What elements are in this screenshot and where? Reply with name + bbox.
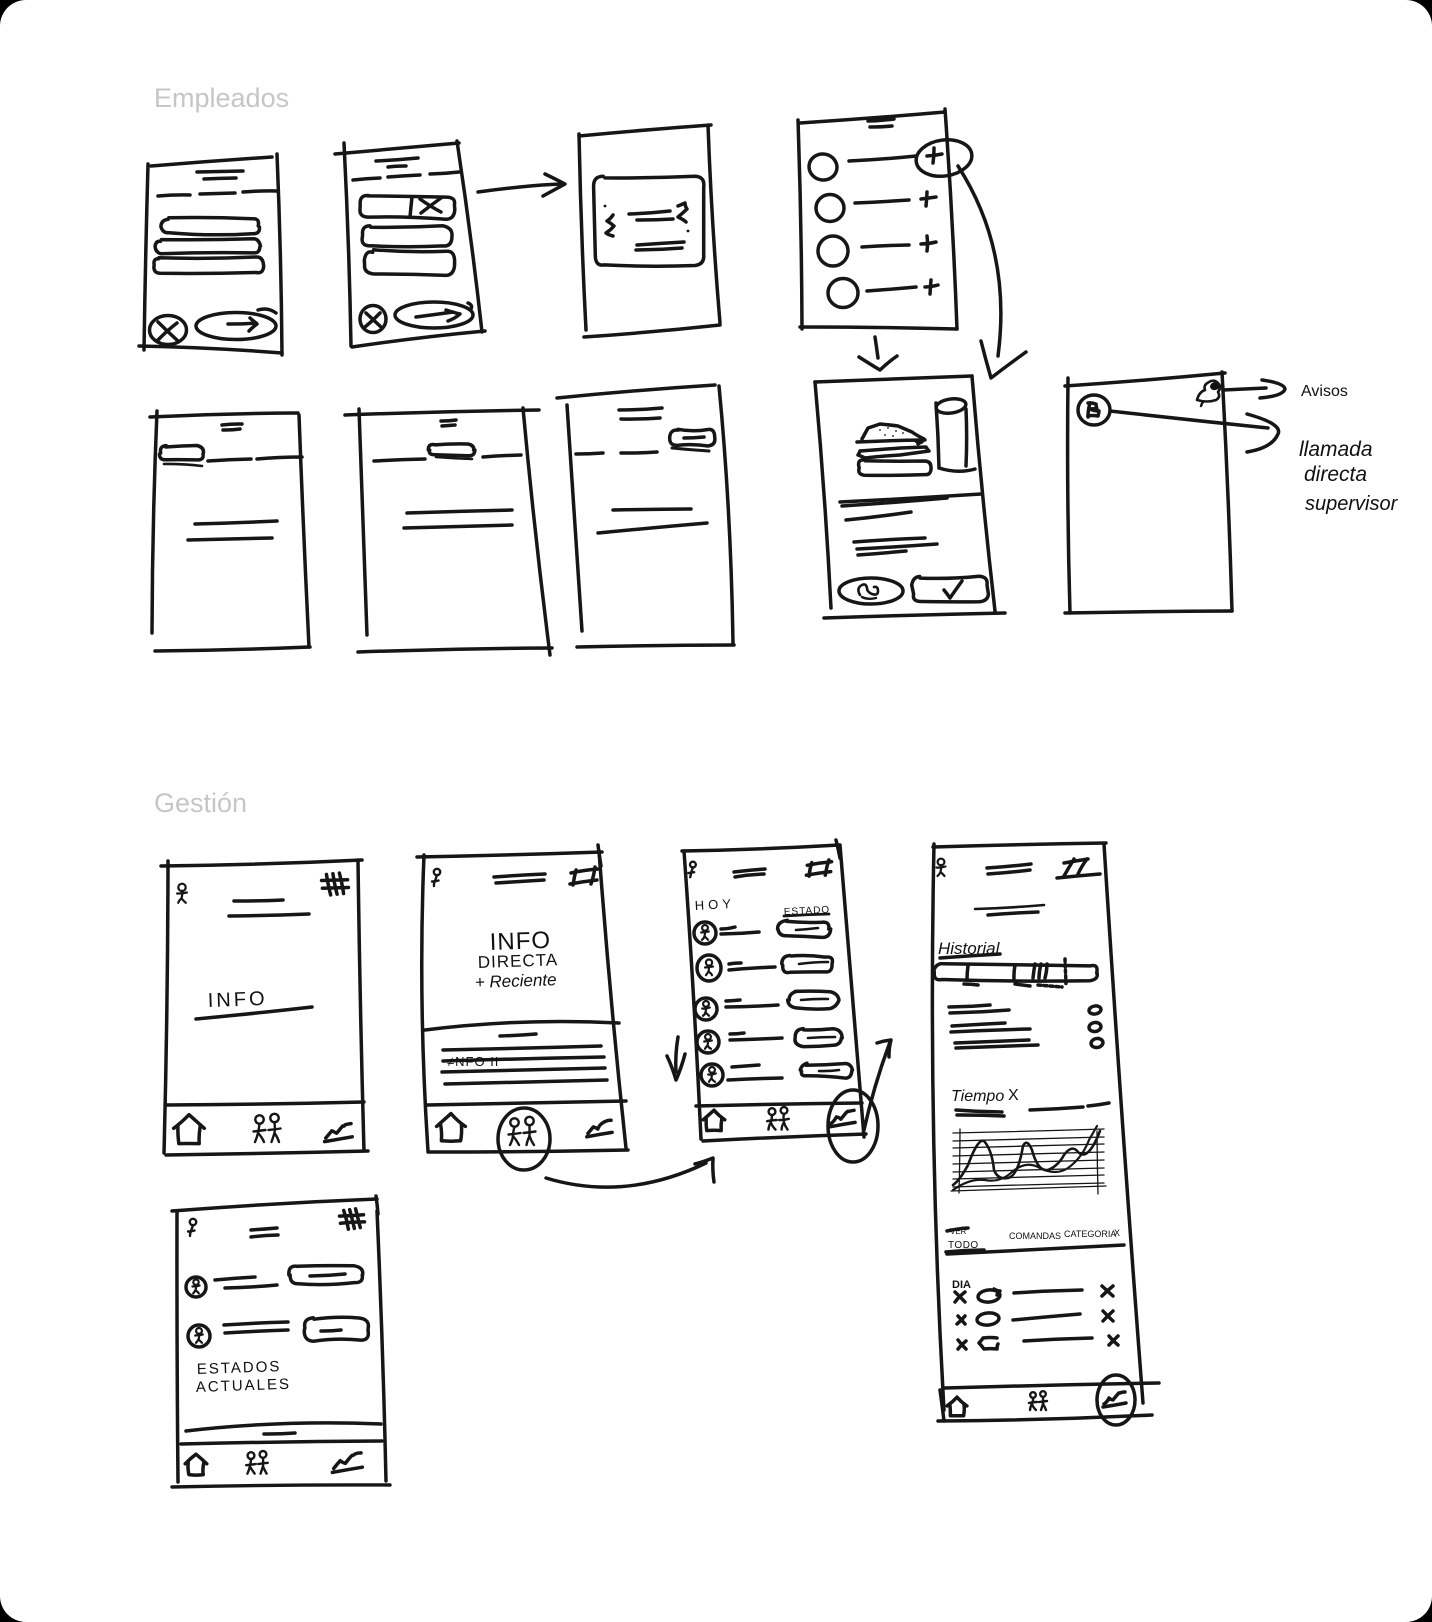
svg-text:Gestión: Gestión: [154, 788, 247, 818]
svg-text:Avisos: Avisos: [1301, 383, 1348, 400]
svg-text:COMANDAS: COMANDAS: [1009, 1231, 1061, 1241]
svg-text:llamada: llamada: [1299, 438, 1373, 461]
svg-text:INFO: INFO: [207, 988, 268, 1012]
svg-text:supervisor: supervisor: [1305, 493, 1399, 515]
svg-text:X: X: [1008, 1087, 1019, 1104]
svg-text:DIA: DIA: [952, 1279, 971, 1291]
svg-text:Tiempo: Tiempo: [951, 1088, 1004, 1105]
svg-text:+ Reciente: + Reciente: [474, 970, 556, 992]
svg-text:ACTUALES: ACTUALES: [196, 1376, 292, 1396]
svg-text:DIRECTA: DIRECTA: [477, 950, 558, 972]
svg-text:≠NFO II: ≠NFO II: [447, 1054, 499, 1069]
svg-text:Empleados: Empleados: [154, 83, 289, 113]
svg-text:directa: directa: [1304, 463, 1367, 486]
svg-text:X: X: [1114, 1228, 1120, 1238]
svg-text:HOY: HOY: [694, 896, 735, 913]
svg-text:CATEGORIA: CATEGORIA: [1064, 1229, 1116, 1239]
svg-text:ESTADOS: ESTADOS: [197, 1358, 282, 1378]
